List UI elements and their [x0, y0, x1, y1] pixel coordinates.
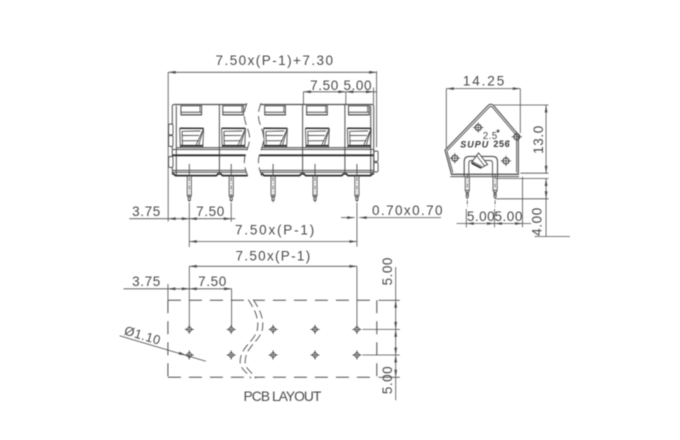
svg-text:14.25: 14.25 — [463, 73, 506, 88]
svg-text:0.70x0.70: 0.70x0.70 — [372, 203, 444, 218]
svg-text:SUPU: SUPU — [460, 140, 489, 150]
svg-text:PCB LAYOUT: PCB LAYOUT — [244, 389, 322, 404]
svg-text:7.50: 7.50 — [198, 274, 227, 289]
svg-text:3.75: 3.75 — [132, 204, 161, 219]
svg-text:13.0: 13.0 — [531, 125, 546, 154]
svg-text:3.75: 3.75 — [132, 274, 161, 289]
svg-text:4.00: 4.00 — [529, 207, 544, 236]
svg-text:7.50x(P-1)+7.30: 7.50x(P-1)+7.30 — [216, 53, 335, 68]
svg-text:7.50: 7.50 — [310, 78, 339, 93]
svg-text:5.00: 5.00 — [343, 78, 372, 93]
svg-text:7.50x(P-1): 7.50x(P-1) — [235, 223, 316, 238]
svg-text:5.00: 5.00 — [380, 257, 395, 285]
svg-text:5.00: 5.00 — [380, 366, 395, 394]
svg-text:7.50: 7.50 — [196, 204, 225, 219]
svg-text:5.00: 5.00 — [495, 209, 523, 224]
svg-text:5.00: 5.00 — [467, 209, 495, 224]
svg-text:7.50x(P-1): 7.50x(P-1) — [235, 248, 311, 263]
